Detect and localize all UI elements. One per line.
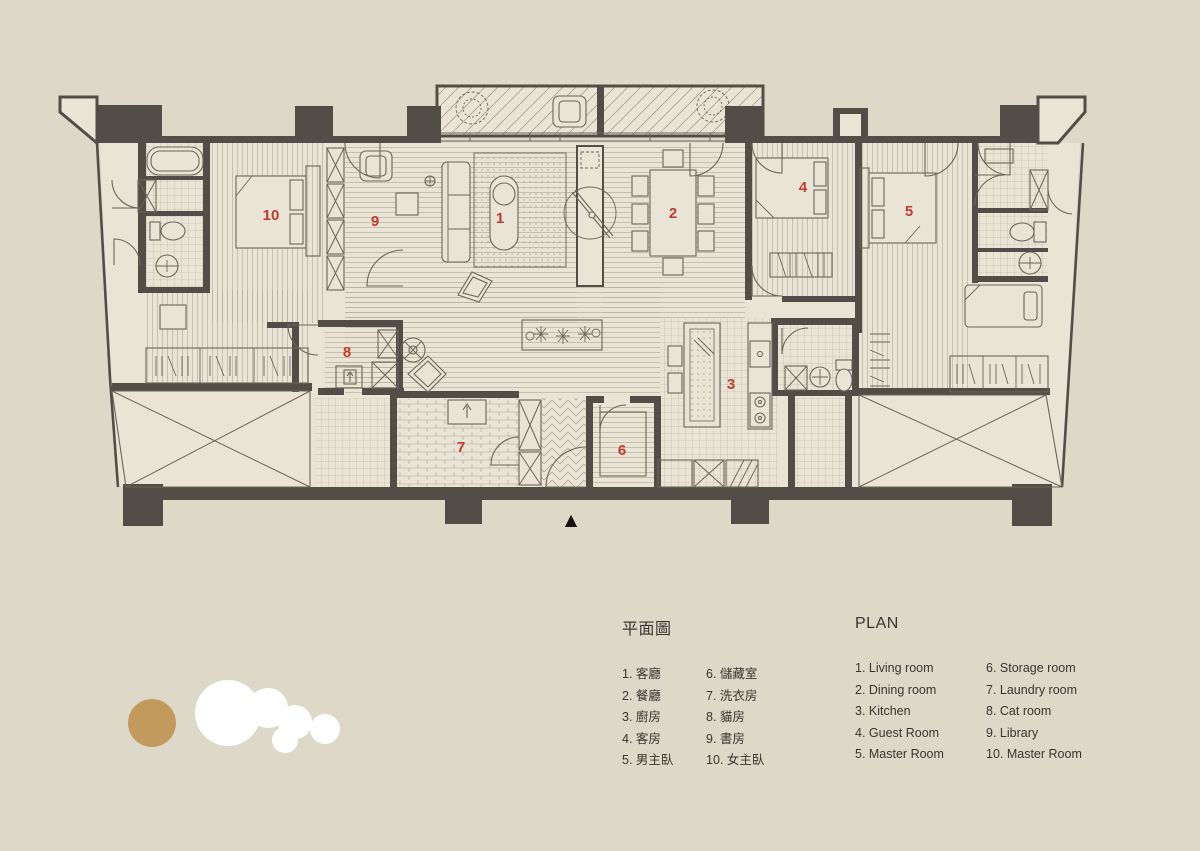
room-number-9: 9	[371, 213, 379, 230]
page: 1 2 3 4 5 6 7 8 9 10 ▲ 平面圖 1. 客廳 2. 餐廳 3…	[0, 0, 1200, 851]
legend-item: 4. Guest Room	[855, 723, 986, 745]
legend-en-col1: 1. Living room 2. Dining room 3. Kitchen…	[855, 658, 986, 766]
toilet	[836, 369, 852, 391]
stool	[668, 373, 682, 393]
legend-item: 6. 儲藏室	[706, 664, 764, 686]
room-number-10: 10	[263, 207, 280, 224]
legend-en: PLAN 1. Living room 2. Dining room 3. Ki…	[855, 615, 1082, 766]
legend-item: 1. Living room	[855, 658, 986, 680]
legend-item: 9. 書房	[706, 729, 764, 751]
laundry-7	[448, 400, 486, 424]
legend-item: 4. 客房	[622, 729, 706, 751]
room-number-1: 1	[496, 210, 504, 227]
desk	[160, 305, 186, 329]
logo-cloud-blob	[190, 670, 365, 765]
balcony	[437, 86, 763, 141]
legend-zh-col1: 1. 客廳 2. 餐廳 3. 廚房 4. 客房 5. 男主臥	[622, 664, 706, 772]
legend-item: 9. Library	[986, 723, 1082, 745]
side-table	[396, 193, 418, 215]
left-corner-wing	[60, 97, 97, 143]
legend-item: 6. Storage room	[986, 658, 1082, 680]
legend-item: 10. 女主臥	[706, 750, 764, 772]
room-number-7: 7	[457, 439, 465, 456]
sofa	[442, 162, 470, 262]
legend-item: 1. 客廳	[622, 664, 706, 686]
legend-item: 2. 餐廳	[622, 686, 706, 708]
toilet-tank	[1034, 222, 1046, 242]
legend-item: 10. Master Room	[986, 744, 1082, 766]
legend-zh-col2: 6. 儲藏室 7. 洗衣房 8. 貓房 9. 書房 10. 女主臥	[706, 664, 764, 772]
rug	[474, 153, 566, 267]
legend-item: 3. Kitchen	[855, 701, 986, 723]
room-number-6: 6	[618, 442, 626, 459]
legend-en-col2: 6. Storage room 7. Laundry room 8. Cat r…	[986, 658, 1082, 766]
legend-item: 5. Master Room	[855, 744, 986, 766]
legend-zh: 平面圖 1. 客廳 2. 餐廳 3. 廚房 4. 客房 5. 男主臥 6. 儲藏…	[622, 615, 764, 772]
floor-plan: 1 2 3 4 5 6 7 8 9 10 ▲	[0, 0, 1200, 560]
legend-item: 8. Cat room	[986, 701, 1082, 723]
north-arrow: ▲	[565, 510, 578, 529]
room-number-5: 5	[905, 203, 913, 220]
stool	[668, 346, 682, 366]
logo-gold-circle	[128, 699, 176, 747]
legend-item: 2. Dining room	[855, 680, 986, 702]
legend-en-title: PLAN	[855, 615, 1082, 633]
toilet-tank	[150, 222, 160, 240]
legend-item: 7. 洗衣房	[706, 686, 764, 708]
room-number-8: 8	[343, 344, 351, 361]
legend-item: 5. 男主臥	[622, 750, 706, 772]
legend-item: 3. 廚房	[622, 707, 706, 729]
legend-zh-title: 平面圖	[622, 615, 764, 639]
legend-item: 8. 貓房	[706, 707, 764, 729]
toilet	[161, 222, 185, 240]
room-number-4: 4	[799, 179, 808, 196]
right-corner-wing	[1038, 97, 1085, 143]
toilet	[1010, 223, 1034, 241]
legend-item: 7. Laundry room	[986, 680, 1082, 702]
room-number-3: 3	[727, 376, 735, 393]
room-number-2: 2	[669, 205, 677, 222]
